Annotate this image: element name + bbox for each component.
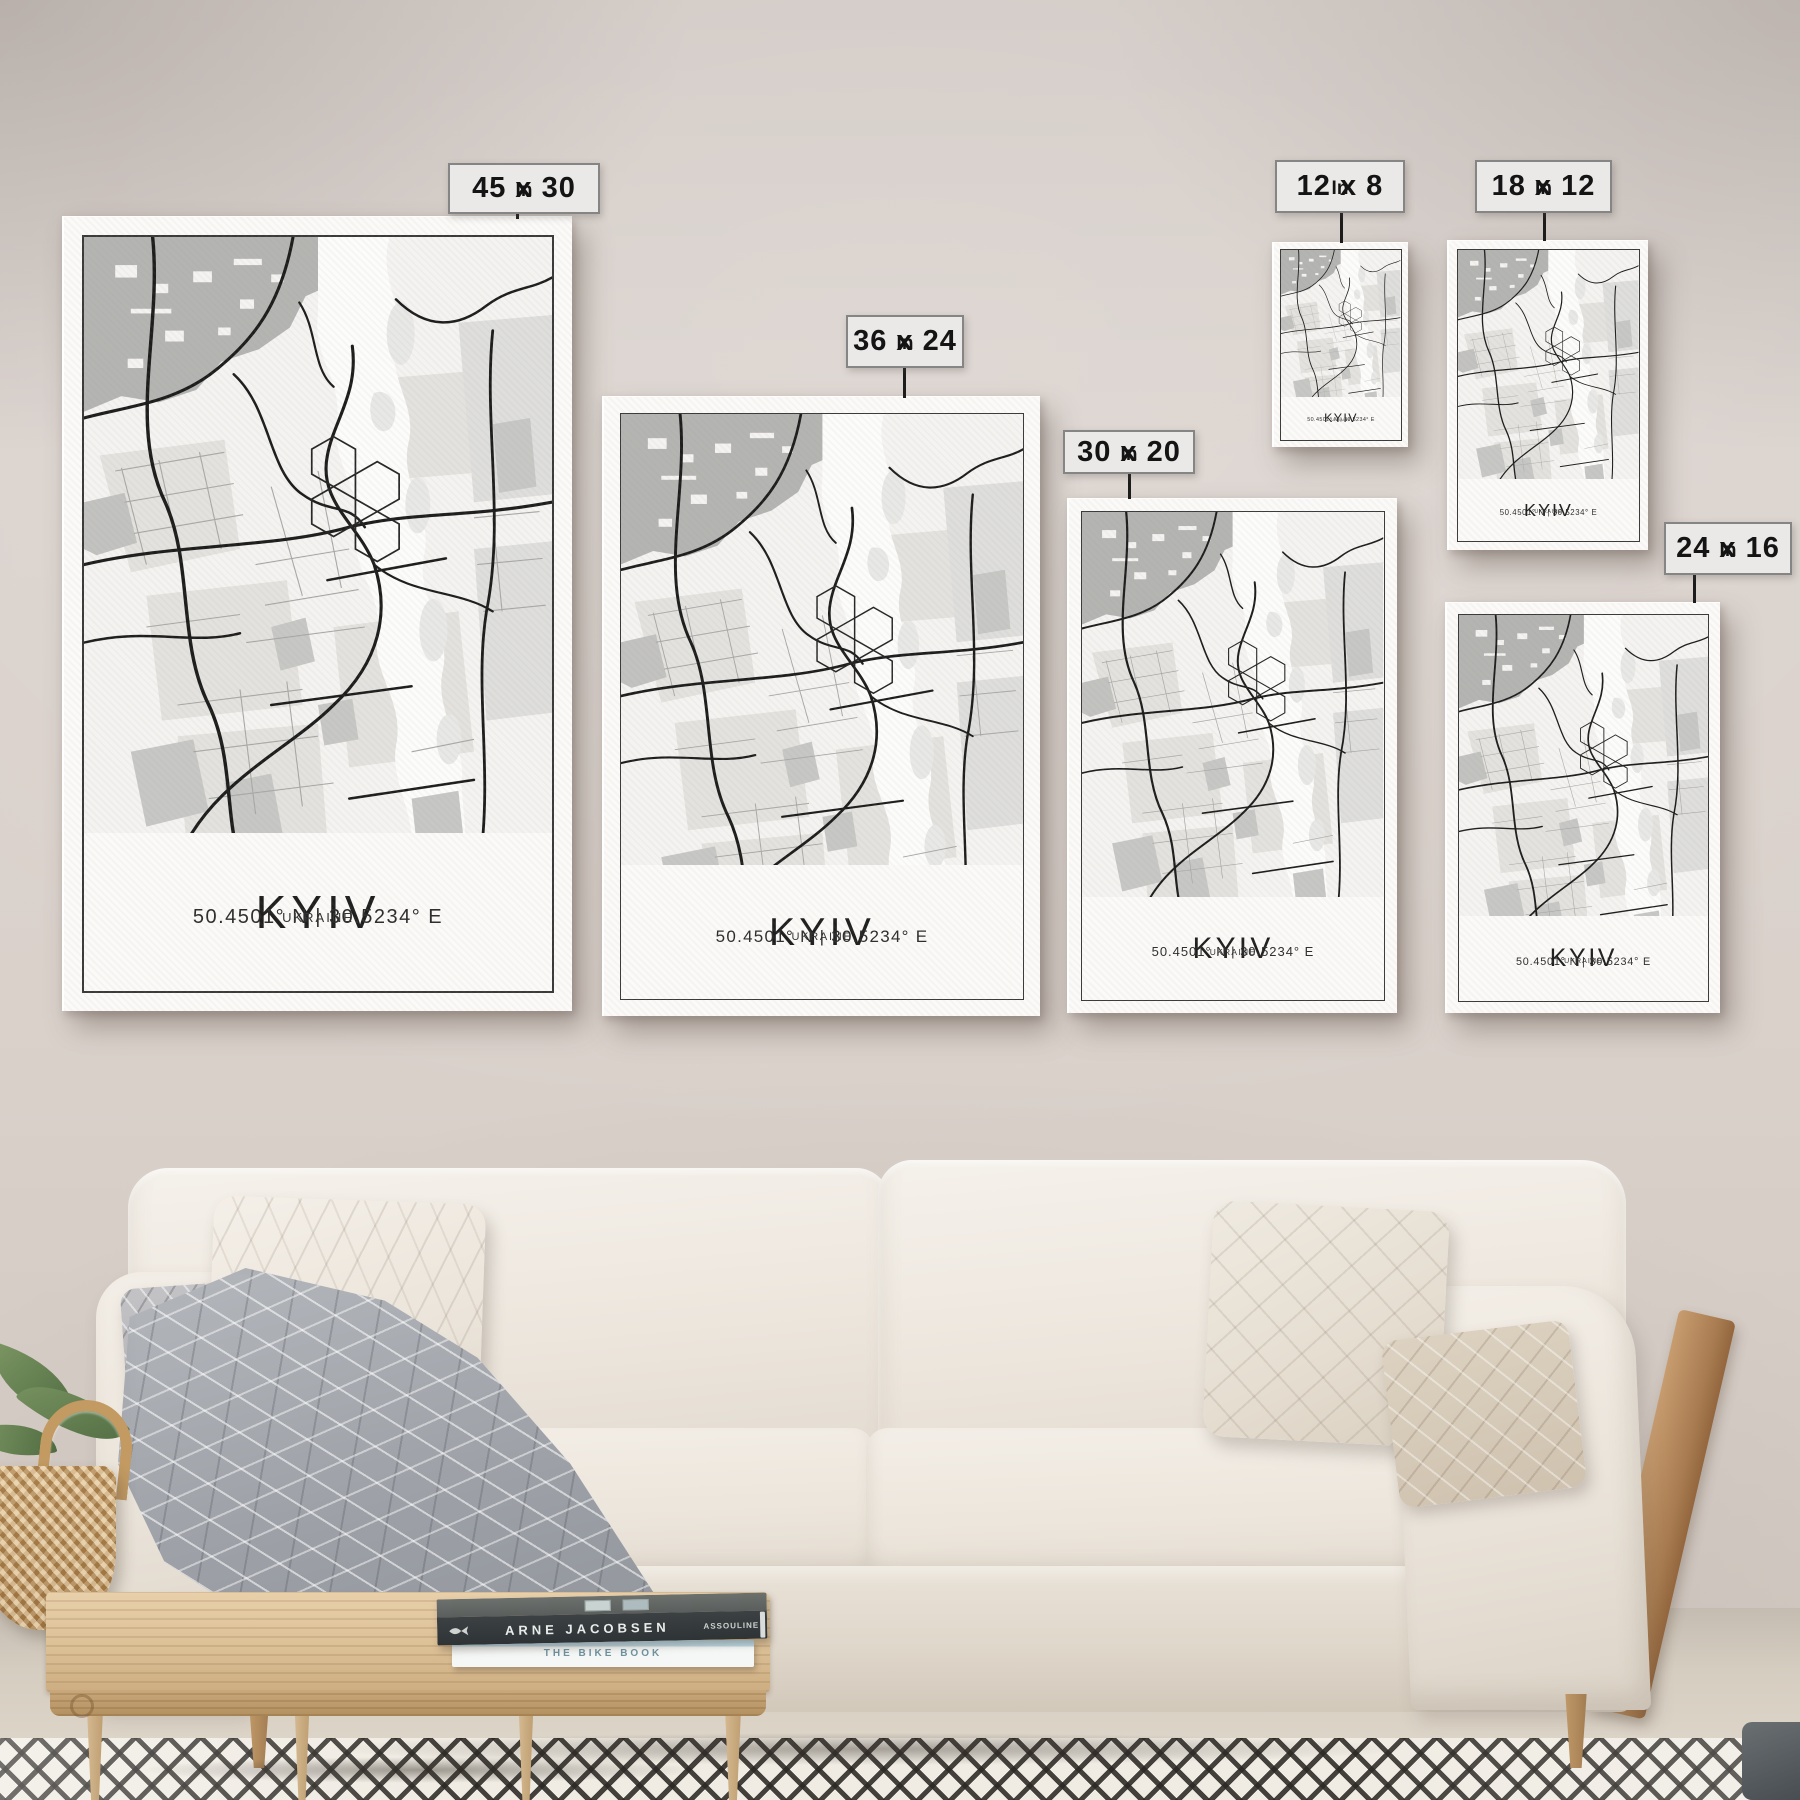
poster-caption: KYIV 50.4501° N | 30.5234° E UKRAINE (621, 865, 1024, 999)
book-publisher: ASSOULINE (703, 1620, 759, 1630)
tag-connector-24x16 (1693, 573, 1696, 603)
size-tag-12x8: 12 x 8 In (1275, 160, 1405, 213)
kyiv-map-art (621, 414, 1024, 866)
book-page-edge (760, 1612, 766, 1638)
kyiv-map-art (1082, 512, 1383, 897)
size-tag-unit: In (897, 328, 914, 355)
size-tag-unit: In (1720, 535, 1737, 562)
tag-connector-36x24 (903, 366, 906, 398)
poster-print: KYIV 50.4501° N | 30.5234° E UKRAINE (1458, 614, 1710, 1003)
size-tag-unit: In (1121, 439, 1138, 466)
poster-caption: KYIV 50.4501° N | 30.5234° E UKRAINE (1281, 397, 1400, 440)
size-tag-45x30: 45 x 30 In (448, 163, 600, 214)
size-tag-36x24: 36 x 24 In (846, 315, 964, 368)
kyiv-map-art (1459, 615, 1709, 916)
canvas-24x16: KYIV 50.4501° N | 30.5234° E UKRAINE (1445, 602, 1720, 1013)
coffee-table-apron (50, 1690, 766, 1716)
table-shadow (30, 1752, 810, 1788)
living-room-product-photo: KYIV 50.4501° N | 30.5234° E UKRAINE KYI… (0, 0, 1800, 1800)
tag-connector-18x12 (1543, 211, 1546, 241)
poster-country: UKRAINE (1535, 509, 1563, 515)
book-arne-jacobsen: ARNE JACOBSEN ASSOULINE (437, 1593, 768, 1646)
canvas-30x20: KYIV 50.4501° N | 30.5234° E UKRAINE (1067, 498, 1397, 1013)
poster-print: KYIV 50.4501° N | 30.5234° E UKRAINE (82, 235, 554, 993)
book-cover-photo (623, 1599, 649, 1611)
fish-icon (447, 1625, 471, 1638)
table-knob-detail (70, 1694, 94, 1718)
poster-caption: KYIV 50.4501° N | 30.5234° E UKRAINE (1458, 479, 1639, 541)
book-title: THE BIKE BOOK (544, 1648, 662, 1659)
kyiv-map-art (1458, 250, 1639, 479)
poster-caption: KYIV 50.4501° N | 30.5234° E UKRAINE (84, 833, 552, 991)
poster-country: UKRAINE (791, 931, 852, 943)
poster-caption: KYIV 50.4501° N | 30.5234° E UKRAINE (1082, 897, 1383, 1000)
dark-floor-object (1742, 1722, 1800, 1800)
canvas-18x12: KYIV 50.4501° N | 30.5234° E UKRAINE (1447, 240, 1648, 550)
size-tag-18x12: 18 x 12 In (1475, 160, 1612, 213)
book-title: ARNE JACOBSEN (471, 1619, 704, 1639)
canvas-36x24: KYIV 50.4501° N | 30.5234° E UKRAINE (602, 396, 1040, 1016)
poster-print: KYIV 50.4501° N | 30.5234° E UKRAINE (1457, 249, 1640, 542)
poster-caption: KYIV 50.4501° N | 30.5234° E UKRAINE (1459, 916, 1709, 1001)
poster-country: UKRAINE (1210, 947, 1257, 957)
size-tag-24x16: 24 x 16 In (1664, 522, 1792, 575)
size-tag-30x20: 30 x 20 In (1063, 430, 1195, 474)
canvas-45x30: KYIV 50.4501° N | 30.5234° E UKRAINE (62, 216, 572, 1011)
poster-country: UKRAINE (1331, 418, 1350, 422)
poster-print: KYIV 50.4501° N | 30.5234° E UKRAINE (1081, 511, 1384, 1000)
size-tag-unit: In (1535, 173, 1552, 200)
kyiv-map-art (84, 237, 552, 833)
tag-connector-12x8 (1340, 211, 1343, 243)
kyiv-map-art (1281, 250, 1400, 397)
poster-country: UKRAINE (1564, 958, 1603, 965)
tag-connector-30x20 (1128, 472, 1131, 499)
beige-quilted-pillow (1380, 1319, 1587, 1509)
book-cover-photo (585, 1600, 611, 1612)
poster-country: UKRAINE (282, 910, 354, 925)
canvas-12x8: KYIV 50.4501° N | 30.5234° E UKRAINE (1272, 242, 1408, 447)
size-tag-unit: In (1332, 173, 1349, 200)
size-tag-unit: In (516, 175, 533, 202)
poster-print: KYIV 50.4501° N | 30.5234° E UKRAINE (620, 413, 1025, 1001)
poster-print: KYIV 50.4501° N | 30.5234° E UKRAINE (1280, 249, 1401, 440)
